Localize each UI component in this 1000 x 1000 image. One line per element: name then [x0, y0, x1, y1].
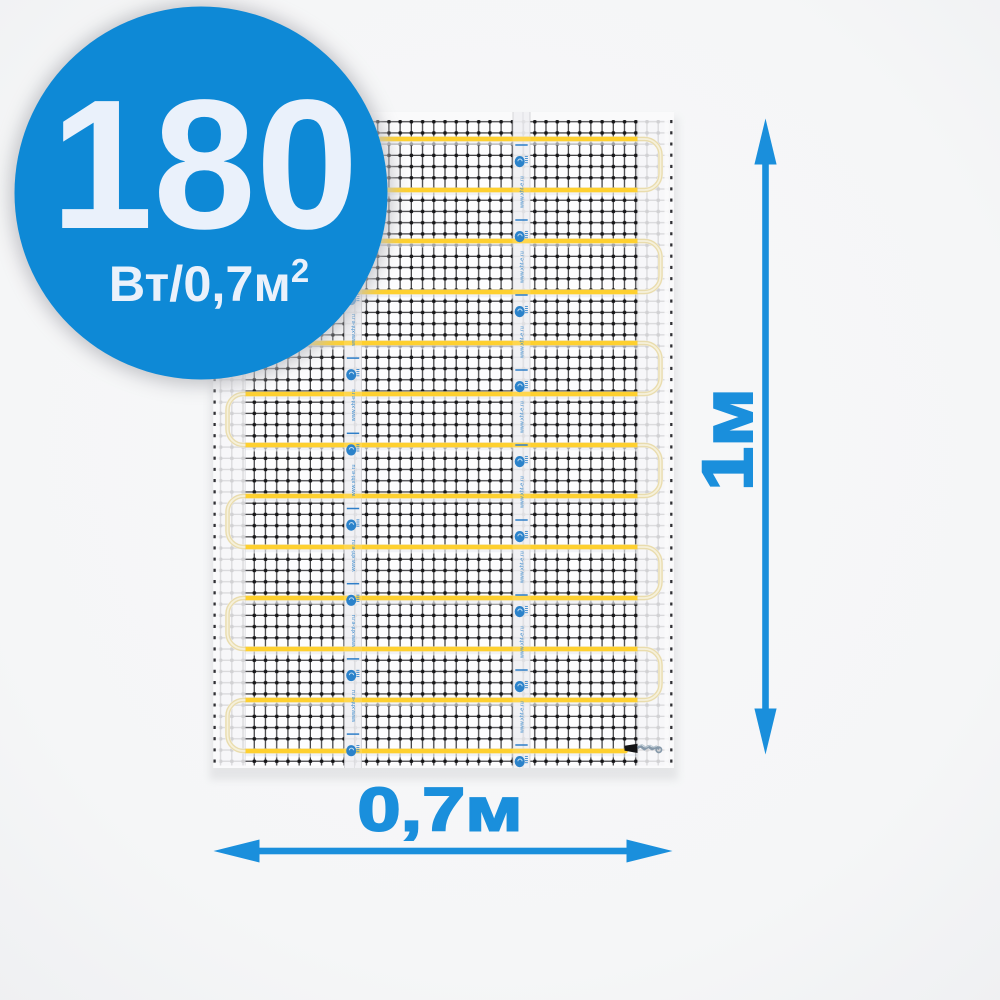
svg-text:0,7м: 0,7м: [357, 775, 522, 844]
svg-text:www.xht-e.ru: www.xht-e.ru: [520, 701, 526, 733]
svg-text:www.xht-e.ru: www.xht-e.ru: [351, 615, 357, 647]
svg-text:www.xht-e.ru: www.xht-e.ru: [351, 314, 357, 346]
svg-text:www.xht-e.ru: www.xht-e.ru: [520, 251, 526, 283]
svg-text:1м: 1м: [688, 388, 767, 491]
svg-text:www.xht-e.ru: www.xht-e.ru: [351, 540, 357, 572]
svg-text:www.xht-e.ru: www.xht-e.ru: [520, 401, 526, 433]
svg-text:Вт/0,7м2: Вт/0,7м2: [109, 252, 310, 312]
svg-text:www.xht-e.ru: www.xht-e.ru: [351, 389, 357, 421]
svg-text:www.xht-e.ru: www.xht-e.ru: [520, 626, 526, 658]
svg-text:www.xht-e.ru: www.xht-e.ru: [351, 464, 357, 496]
svg-text:180: 180: [51, 62, 359, 268]
svg-text:www.xht-e.ru: www.xht-e.ru: [520, 326, 526, 358]
svg-text:www.xht-e.ru: www.xht-e.ru: [351, 690, 357, 722]
svg-text:www.xht-e.ru: www.xht-e.ru: [520, 551, 526, 583]
svg-text:www.xht-e.ru: www.xht-e.ru: [520, 476, 526, 508]
svg-text:www.xht-e.ru: www.xht-e.ru: [520, 176, 526, 208]
